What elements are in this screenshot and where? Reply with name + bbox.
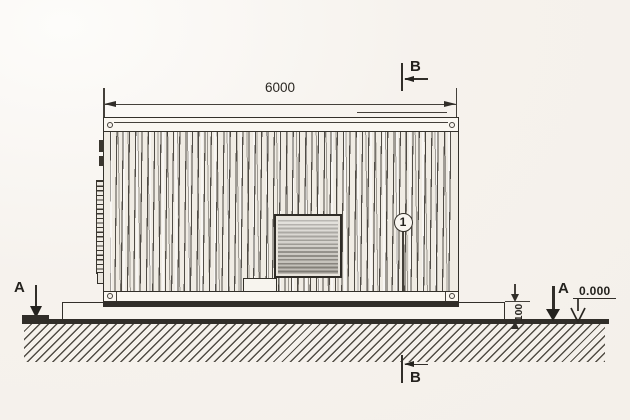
step-box xyxy=(243,278,277,292)
hinge-middle xyxy=(99,156,104,166)
hinge-upper xyxy=(99,140,104,152)
hinge-lower xyxy=(97,272,104,284)
section-a-right-label: A xyxy=(558,280,569,297)
section-b-top-arrow-icon xyxy=(404,76,414,82)
level-marker-icon xyxy=(566,298,590,324)
callout-leader-line xyxy=(402,230,403,291)
section-b-bottom-arrow-icon xyxy=(404,361,414,367)
section-a-right-arrow-icon xyxy=(546,309,560,321)
base-shadow-line xyxy=(103,302,459,307)
dimension-line xyxy=(104,104,456,106)
bottom-rail-right-joint xyxy=(445,292,446,301)
corner-casting-hole-bottom-left xyxy=(107,293,113,299)
louver-grille xyxy=(274,214,342,278)
ground-hatch xyxy=(24,324,605,362)
corner-casting-hole-bottom-right xyxy=(449,293,455,299)
container-elevation-drawing: 6000 B 1 A 100 A xyxy=(0,0,630,420)
bottom-rail-left-joint xyxy=(116,292,117,301)
callout-1-bubble: 1 xyxy=(394,213,413,232)
dimension-arrow-left-icon xyxy=(104,101,116,107)
section-a-right-arrow-shaft xyxy=(552,286,555,310)
dimension-arrow-right-icon xyxy=(444,101,456,107)
section-a-left-arrow-shaft xyxy=(35,285,37,307)
plinth-dim-arrow-up-icon xyxy=(511,321,519,329)
section-a-left-label: A xyxy=(14,279,25,296)
section-b-bottom-cut-line xyxy=(401,355,403,383)
top-rail xyxy=(103,117,459,132)
roof-edge-line xyxy=(357,112,447,113)
elevation-level-label: 0.000 xyxy=(579,284,611,298)
section-b-top-label: B xyxy=(410,58,421,75)
corner-casting-hole-top-right xyxy=(449,122,455,128)
bottom-rail xyxy=(103,291,459,302)
side-ladder xyxy=(96,180,104,274)
top-rail-groove xyxy=(114,122,448,123)
callout-1-number: 1 xyxy=(400,215,407,229)
corner-casting-hole-top-left xyxy=(107,122,113,128)
section-b-bottom-label: B xyxy=(410,369,421,386)
width-dimension-label: 6000 xyxy=(240,80,320,95)
section-a-left-ground-bar xyxy=(22,315,49,320)
